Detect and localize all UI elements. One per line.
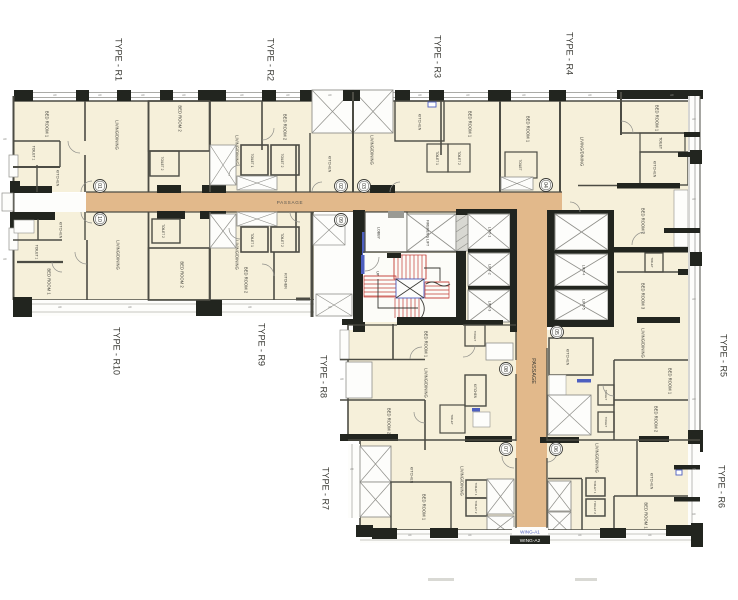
svg-text:LIVING/DINING: LIVING/DINING — [459, 466, 464, 496]
svg-text:BED ROOM 1: BED ROOM 1 — [423, 331, 428, 358]
svg-text:AF: AF — [128, 305, 132, 309]
svg-text:WING-A2: WING-A2 — [520, 538, 541, 544]
svg-text:AF: AF — [98, 93, 102, 97]
svg-text:LIVING/DINING: LIVING/DINING — [369, 135, 374, 165]
svg-text:TYPE - R5: TYPE - R5 — [719, 334, 729, 377]
svg-text:09: 09 — [337, 217, 343, 223]
svg-text:TYPE - R9: TYPE - R9 — [257, 323, 267, 366]
svg-text:TOILET: TOILET — [659, 137, 663, 149]
svg-text:KITCHEN: KITCHEN — [284, 273, 288, 289]
svg-text:AF: AF — [53, 93, 57, 97]
svg-text:FIREMEN'S LIFT: FIREMEN'S LIFT — [426, 220, 430, 246]
svg-text:AF: AF — [466, 93, 470, 97]
svg-text:05: 05 — [553, 329, 559, 335]
svg-text:TYPE - R2: TYPE - R2 — [266, 38, 276, 81]
svg-text:BED ROOM 1: BED ROOM 1 — [643, 502, 648, 529]
svg-text:KITCHEN: KITCHEN — [473, 384, 477, 399]
svg-text:TOILET 2: TOILET 2 — [280, 154, 284, 168]
svg-text:KITCHEN: KITCHEN — [328, 156, 332, 173]
svg-text:TOILET 1: TOILET 1 — [32, 146, 36, 161]
svg-text:BED ROOM 3: BED ROOM 3 — [640, 283, 645, 310]
svg-text:KITCHEN: KITCHEN — [410, 467, 414, 484]
svg-text:TOILET 1: TOILET 1 — [593, 481, 597, 494]
svg-text:TOILET: TOILET — [518, 159, 522, 170]
svg-text:01: 01 — [96, 183, 102, 189]
svg-text:KITCHEN: KITCHEN — [418, 114, 422, 131]
svg-text:TOILET: TOILET — [604, 417, 608, 428]
svg-text:BED ROOM 1: BED ROOM 1 — [654, 105, 659, 132]
svg-text:BED ROOM 1: BED ROOM 1 — [525, 116, 530, 143]
svg-text:AF: AF — [522, 93, 526, 97]
svg-text:TYPE - R1: TYPE - R1 — [114, 38, 124, 81]
svg-text:TOILET 1: TOILET 1 — [250, 233, 254, 247]
svg-text:TYPE - R3: TYPE - R3 — [433, 35, 443, 78]
svg-text:AF: AF — [286, 93, 290, 97]
svg-text:KITCHEN: KITCHEN — [650, 473, 654, 490]
svg-text:BED ROOM 2: BED ROOM 2 — [386, 408, 391, 435]
svg-text:LIVING/DINING: LIVING/DINING — [594, 443, 599, 473]
svg-text:KITCHEN: KITCHEN — [59, 222, 63, 239]
svg-text:TYPE - R6: TYPE - R6 — [717, 465, 727, 508]
svg-text:TYPE - R4: TYPE - R4 — [565, 32, 575, 75]
svg-text:KITCHEN: KITCHEN — [566, 349, 570, 366]
svg-text:AF: AF — [408, 533, 412, 537]
svg-text:LIFT-4: LIFT-4 — [582, 265, 586, 275]
svg-text:TOILET: TOILET — [650, 257, 654, 268]
svg-text:LOBBY: LOBBY — [377, 227, 381, 240]
svg-text:LIFT-2: LIFT-2 — [488, 264, 492, 274]
svg-text:TOILET 1: TOILET 1 — [35, 245, 39, 260]
svg-text:LIVING/DINING: LIVING/DINING — [423, 368, 428, 398]
svg-text:AF: AF — [588, 93, 592, 97]
svg-text:02: 02 — [337, 183, 343, 189]
svg-text:BED ROOM 2: BED ROOM 2 — [177, 105, 182, 132]
svg-text:AF: AF — [3, 257, 7, 261]
svg-text:PASSAGE: PASSAGE — [277, 200, 304, 205]
svg-text:AF: AF — [340, 377, 344, 381]
svg-text:AF: AF — [692, 297, 696, 301]
svg-text:TOILET 1: TOILET 1 — [474, 483, 478, 496]
svg-text:TOILET 2: TOILET 2 — [160, 157, 164, 171]
svg-text:AF: AF — [182, 93, 186, 97]
svg-text:AF: AF — [350, 467, 354, 471]
svg-text:07: 07 — [502, 446, 508, 452]
svg-text:BED ROOM 2: BED ROOM 2 — [640, 208, 645, 235]
svg-text:10: 10 — [96, 216, 102, 222]
svg-text:06: 06 — [552, 446, 558, 452]
svg-text:AF: AF — [240, 93, 244, 97]
svg-text:AF: AF — [3, 137, 7, 141]
svg-text:BED ROOM 2: BED ROOM 2 — [243, 267, 248, 294]
svg-text:LIFT-3: LIFT-3 — [488, 301, 492, 311]
svg-text:LIVING/DINING: LIVING/DINING — [114, 120, 119, 150]
svg-text:LIVING/DINING: LIVING/DINING — [640, 328, 645, 358]
svg-text:AF: AF — [692, 467, 696, 471]
svg-text:AF: AF — [418, 93, 422, 97]
svg-text:PASSAGE: PASSAGE — [530, 358, 536, 384]
svg-text:WING-A1: WING-A1 — [520, 530, 540, 535]
svg-text:AF: AF — [692, 117, 696, 121]
svg-text:AF: AF — [328, 305, 332, 309]
svg-text:UP: UP — [376, 271, 380, 276]
svg-text:BED ROOM 2: BED ROOM 2 — [282, 114, 287, 141]
svg-text:TOILET 2: TOILET 2 — [593, 501, 597, 514]
svg-text:AF: AF — [141, 93, 145, 97]
svg-text:BED ROOM 1: BED ROOM 1 — [667, 368, 672, 395]
svg-text:KITCHEN: KITCHEN — [653, 161, 657, 178]
svg-text:AF: AF — [328, 93, 332, 97]
svg-text:AF: AF — [578, 533, 582, 537]
svg-text:TOILET 2: TOILET 2 — [161, 224, 165, 238]
svg-text:AF: AF — [248, 305, 252, 309]
svg-text:LIVING/DINING: LIVING/DINING — [579, 137, 584, 167]
svg-text:TOILET: TOILET — [604, 390, 608, 401]
svg-text:LIFT-1: LIFT-1 — [488, 227, 492, 237]
svg-text:08: 08 — [502, 366, 508, 372]
svg-text:TOILET: TOILET — [450, 414, 454, 425]
svg-text:BED ROOM 2: BED ROOM 2 — [179, 261, 184, 288]
svg-text:TOILET 2: TOILET 2 — [474, 501, 478, 514]
svg-text:TOILET 1: TOILET 1 — [250, 154, 254, 168]
svg-text:BED ROOM 1: BED ROOM 1 — [421, 494, 426, 521]
svg-text:TOILET: TOILET — [473, 331, 477, 342]
svg-text:AF: AF — [692, 197, 696, 201]
svg-text:KITCHEN: KITCHEN — [56, 170, 60, 187]
svg-text:AF: AF — [692, 397, 696, 401]
svg-text:BED ROOM 1: BED ROOM 1 — [44, 111, 49, 138]
svg-text:LIVING/DINING: LIVING/DINING — [115, 240, 120, 270]
svg-text:TYPE - R7: TYPE - R7 — [321, 467, 331, 510]
svg-text:TOILET 2: TOILET 2 — [280, 233, 284, 247]
svg-text:04: 04 — [542, 182, 548, 188]
svg-text:AF: AF — [648, 533, 652, 537]
svg-text:AF: AF — [58, 305, 62, 309]
svg-text:AF: AF — [468, 533, 472, 537]
svg-text:TYPE - R8: TYPE - R8 — [319, 355, 329, 398]
svg-text:TYPE - R10: TYPE - R10 — [112, 327, 122, 375]
svg-text:BED ROOM 2: BED ROOM 2 — [653, 406, 658, 433]
svg-text:AF: AF — [692, 512, 696, 516]
svg-text:BED ROOM 1: BED ROOM 1 — [46, 268, 51, 295]
svg-text:AF: AF — [670, 93, 674, 97]
svg-text:03: 03 — [360, 183, 366, 189]
svg-text:TOILET 2: TOILET 2 — [457, 151, 461, 165]
svg-text:LIFT-5: LIFT-5 — [582, 299, 586, 309]
svg-text:TOILET 1: TOILET 1 — [435, 151, 439, 165]
svg-text:BED ROOM 1: BED ROOM 1 — [467, 111, 472, 138]
